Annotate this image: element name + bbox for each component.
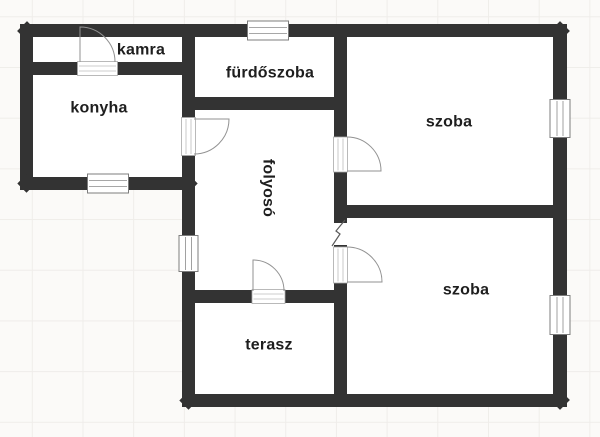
wall-break-symbol <box>332 220 347 246</box>
room-label-terasz: terasz <box>245 337 292 354</box>
room-label-szoba-top: szoba <box>426 114 472 131</box>
window-kitchen-bottom <box>88 174 129 193</box>
wall-main-left <box>182 24 195 407</box>
room-label-folyoso: folyosó <box>260 159 277 217</box>
floor-plan-drawing: kamra konyha fürdőszoba folyosó szoba sz… <box>0 0 600 437</box>
floor-plan-canvas: kamra konyha fürdőszoba folyosó szoba sz… <box>0 0 600 437</box>
window-room-bottom-right <box>550 296 570 335</box>
wall-right-outer <box>553 24 567 407</box>
door-sill-pantry <box>78 62 118 76</box>
window-hallway-left <box>179 236 198 272</box>
wall-bathroom-bottom <box>195 97 334 110</box>
door-sill-room-bottom <box>334 247 348 283</box>
door-sill-terrace <box>252 290 285 304</box>
window-bathroom-top <box>248 21 289 40</box>
door-sill-room-top <box>334 137 348 172</box>
room-label-szoba-bottom: szoba <box>443 282 489 299</box>
wall-left-outer <box>20 24 33 190</box>
window-room-top-right <box>550 100 570 138</box>
wall-mid-right <box>334 24 347 407</box>
wall-bottom <box>182 394 567 407</box>
room-label-furdoszoba: fürdőszoba <box>226 65 314 82</box>
wall-room-divider <box>347 205 553 218</box>
room-label-konyha: konyha <box>70 100 127 117</box>
room-label-kamra: kamra <box>117 42 165 59</box>
door-sill-kitchen <box>182 118 196 156</box>
